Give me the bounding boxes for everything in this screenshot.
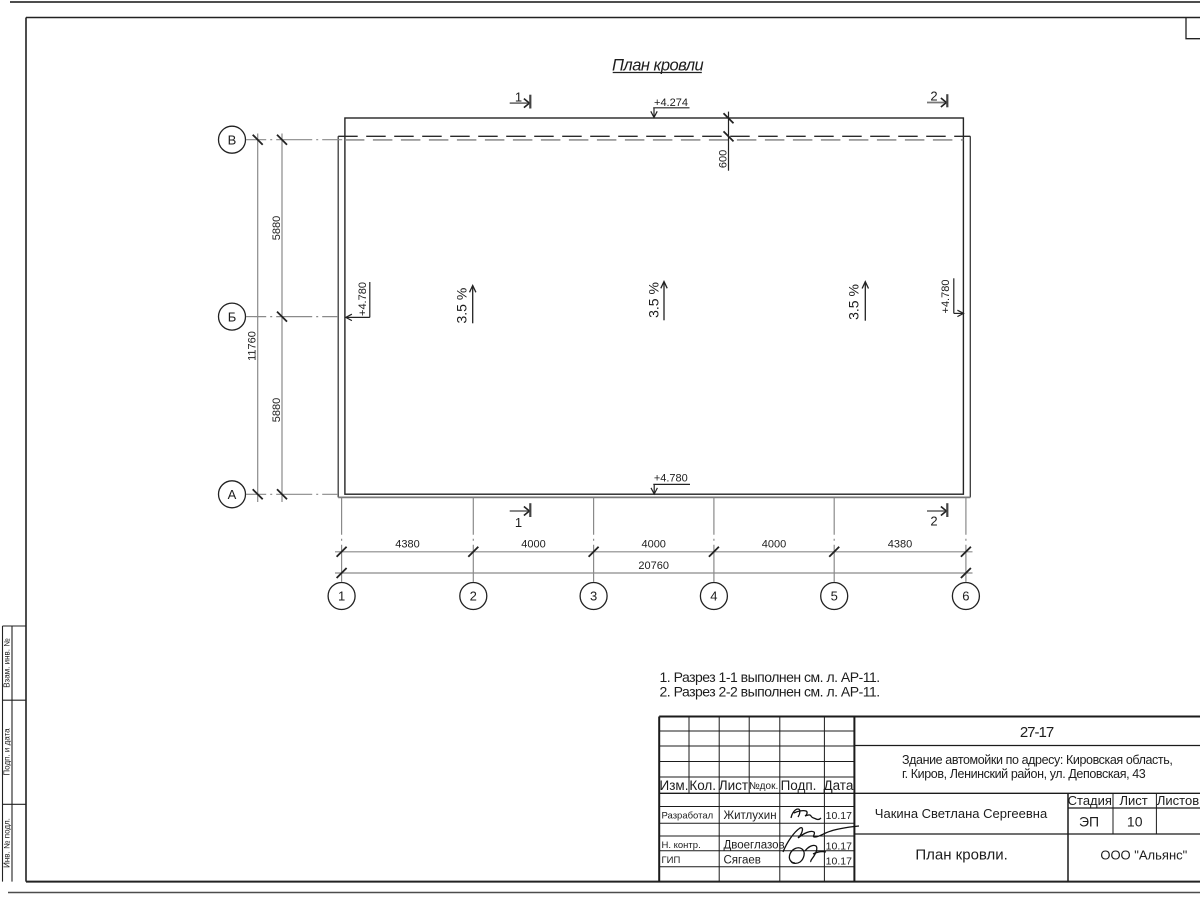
svg-text:10.17: 10.17 bbox=[826, 810, 852, 822]
svg-text:Житлухин: Житлухин bbox=[724, 810, 777, 822]
svg-text:27-17: 27-17 bbox=[1020, 724, 1054, 741]
svg-text:2. Разрез 2-2 выполнен см. л.: 2. Разрез 2-2 выполнен см. л. АР-11. bbox=[660, 684, 880, 700]
svg-text:№док.: №док. bbox=[749, 781, 778, 792]
svg-text:Б: Б bbox=[228, 309, 237, 324]
svg-text:Дата: Дата bbox=[823, 778, 853, 793]
svg-text:Листов: Листов bbox=[1157, 793, 1199, 808]
svg-text:ЭП: ЭП bbox=[1079, 813, 1099, 829]
svg-text:10.17: 10.17 bbox=[826, 841, 852, 853]
svg-text:Взам. инв. №: Взам. инв. № bbox=[3, 638, 12, 688]
svg-text:ООО "Альянс": ООО "Альянс" bbox=[1100, 847, 1187, 862]
svg-text:3: 3 bbox=[590, 589, 597, 604]
svg-text:1: 1 bbox=[515, 515, 522, 530]
svg-text:В: В bbox=[228, 132, 237, 147]
svg-text:Разработал: Разработал bbox=[662, 811, 714, 822]
svg-text:Чакина Светлана Сергеевна: Чакина Светлана Сергеевна bbox=[875, 806, 1048, 821]
svg-text:3.5 %: 3.5 % bbox=[846, 284, 862, 320]
svg-text:4000: 4000 bbox=[641, 538, 665, 550]
svg-text:Кол.: Кол. bbox=[689, 778, 716, 793]
svg-text:+4.274: +4.274 bbox=[654, 97, 688, 109]
svg-text:Изм.: Изм. bbox=[660, 778, 689, 793]
svg-text:1: 1 bbox=[515, 89, 522, 104]
svg-text:Подп. и дата: Подп. и дата bbox=[3, 728, 12, 776]
svg-text:4000: 4000 bbox=[521, 538, 545, 550]
svg-text:11760: 11760 bbox=[247, 331, 259, 361]
svg-text:ГИП: ГИП bbox=[662, 855, 681, 866]
svg-text:5880: 5880 bbox=[271, 216, 283, 240]
svg-text:Инв. № подл.: Инв. № подл. bbox=[3, 818, 12, 868]
svg-text:А: А bbox=[228, 487, 237, 502]
svg-text:Двоеглазов: Двоеглазов bbox=[724, 839, 785, 851]
svg-text:Сягаев: Сягаев bbox=[724, 854, 761, 866]
svg-text:1: 1 bbox=[338, 589, 345, 604]
svg-text:2: 2 bbox=[930, 89, 937, 104]
svg-text:4000: 4000 bbox=[762, 538, 786, 550]
svg-text:г. Киров, Ленинский район, ул.: г. Киров, Ленинский район, ул. Деповская… bbox=[902, 767, 1146, 781]
svg-text:10.17: 10.17 bbox=[826, 856, 852, 868]
svg-text:10: 10 bbox=[1127, 813, 1143, 829]
svg-text:Н. контр.: Н. контр. bbox=[662, 840, 701, 851]
svg-text:6: 6 bbox=[962, 589, 969, 604]
svg-text:+4.780: +4.780 bbox=[654, 473, 688, 485]
svg-text:+4.780: +4.780 bbox=[357, 282, 369, 316]
svg-text:4380: 4380 bbox=[888, 538, 912, 550]
svg-text:1. Разрез 1-1 выполнен см. л.: 1. Разрез 1-1 выполнен см. л. АР-11. bbox=[660, 669, 880, 685]
svg-text:Лист: Лист bbox=[719, 778, 748, 793]
svg-text:План кровли.: План кровли. bbox=[915, 846, 1008, 863]
svg-text:Лист: Лист bbox=[1119, 793, 1147, 808]
svg-text:Здание автомойки по адресу: Ки: Здание автомойки по адресу: Кировская об… bbox=[902, 753, 1172, 767]
svg-text:Стадия: Стадия bbox=[1068, 793, 1112, 808]
svg-text:Подп.: Подп. bbox=[781, 778, 817, 793]
svg-text:3.5 %: 3.5 % bbox=[453, 288, 469, 324]
svg-text:4380: 4380 bbox=[395, 538, 419, 550]
svg-text:20760: 20760 bbox=[638, 560, 669, 572]
svg-text:5: 5 bbox=[831, 589, 838, 604]
svg-text:2: 2 bbox=[470, 589, 477, 604]
svg-text:+4.780: +4.780 bbox=[940, 280, 952, 314]
svg-text:5880: 5880 bbox=[271, 398, 283, 422]
svg-text:План кровли: План кровли bbox=[612, 56, 704, 74]
svg-text:3.5 %: 3.5 % bbox=[646, 282, 662, 318]
svg-text:2: 2 bbox=[930, 513, 937, 528]
svg-text:600: 600 bbox=[718, 150, 730, 168]
svg-text:4: 4 bbox=[710, 589, 717, 604]
